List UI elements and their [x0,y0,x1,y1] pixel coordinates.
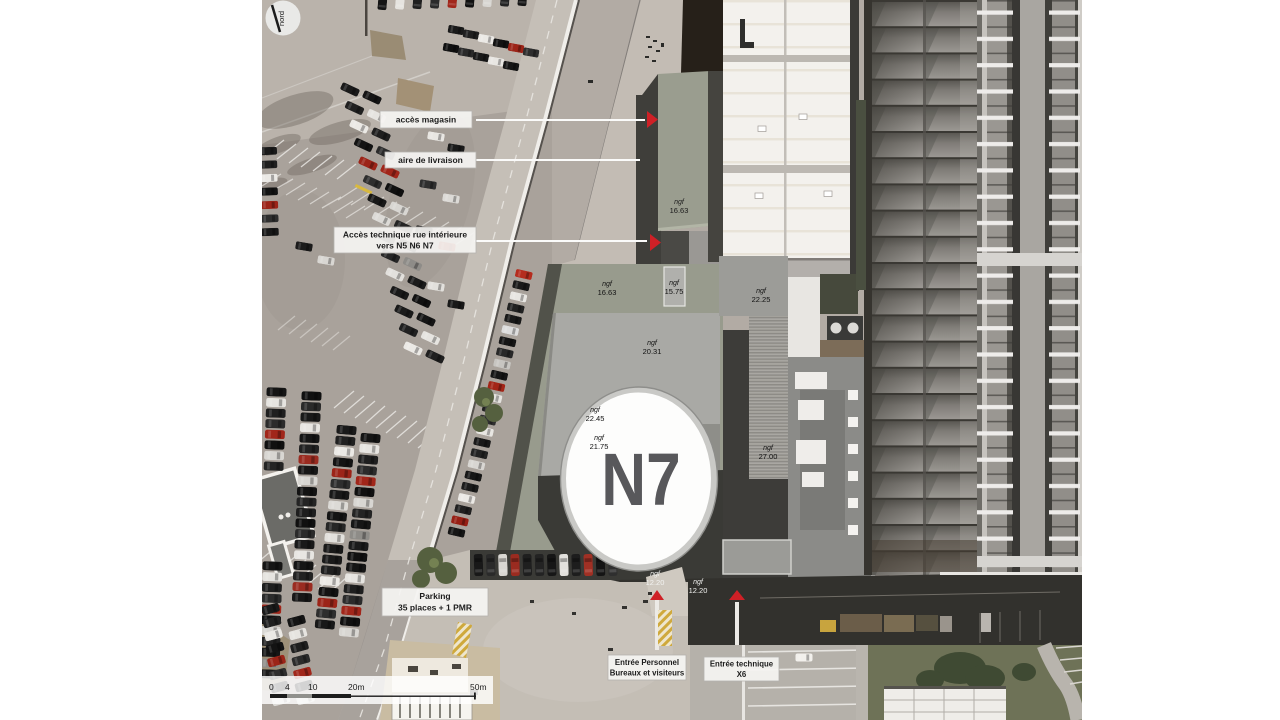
svg-text:vers N5 N6 N7: vers N5 N6 N7 [376,241,433,251]
svg-text:22.45: 22.45 [586,414,605,423]
svg-text:20.31: 20.31 [643,347,662,356]
svg-text:15.75: 15.75 [665,287,684,296]
svg-text:nord: nord [277,11,286,26]
svg-text:ngf: ngf [763,445,774,452]
svg-text:ngf: ngf [650,571,661,578]
svg-text:22.25: 22.25 [752,295,771,304]
svg-text:N7: N7 [601,439,680,521]
svg-text:Parking: Parking [419,591,450,601]
svg-text:16.63: 16.63 [598,288,617,297]
svg-text:10: 10 [308,682,318,692]
svg-text:ngf: ngf [669,280,680,287]
svg-text:Accès technique rue intérieure: Accès technique rue intérieure [343,230,468,240]
svg-text:12.20: 12.20 [689,586,708,595]
svg-text:ngf: ngf [647,340,658,347]
svg-text:16.63: 16.63 [670,206,689,215]
svg-text:27.00: 27.00 [759,452,778,461]
svg-text:ngf: ngf [590,407,601,414]
svg-text:ngf: ngf [594,435,605,442]
svg-text:21.75: 21.75 [590,442,609,451]
svg-text:aire de livraison: aire de livraison [398,155,463,165]
svg-text:50m: 50m [470,682,487,692]
svg-text:20m: 20m [348,682,365,692]
svg-text:35 places + 1 PMR: 35 places + 1 PMR [398,603,472,613]
svg-text:ngf: ngf [674,199,685,206]
svg-text:Entrée technique: Entrée technique [710,660,774,669]
svg-text:Bureaux et visiteurs: Bureaux et visiteurs [610,669,685,678]
svg-text:12.20: 12.20 [646,578,665,587]
svg-text:accès magasin: accès magasin [396,115,456,125]
svg-text:ngf: ngf [693,579,704,586]
svg-text:4: 4 [285,682,290,692]
svg-text:ngf: ngf [602,281,613,288]
svg-text:0: 0 [269,682,274,692]
svg-text:Entrée Personnel: Entrée Personnel [615,658,679,667]
svg-text:ngf: ngf [756,288,767,295]
svg-text:X6: X6 [737,670,747,679]
